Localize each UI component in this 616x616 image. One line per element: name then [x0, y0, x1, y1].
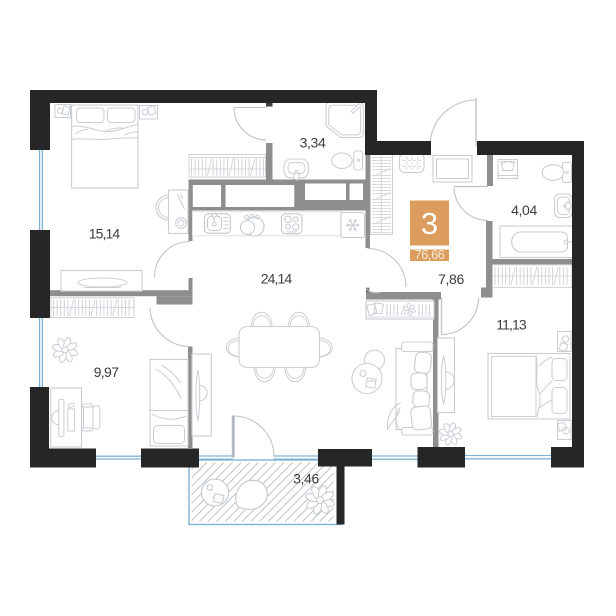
svg-text:15,14: 15,14: [89, 226, 121, 242]
svg-text:76,66: 76,66: [414, 247, 444, 262]
svg-text:3,46: 3,46: [293, 471, 319, 487]
svg-text:7,86: 7,86: [438, 271, 464, 287]
svg-text:11,13: 11,13: [496, 317, 527, 333]
svg-text:24,14: 24,14: [261, 271, 293, 287]
svg-text:3,34: 3,34: [300, 135, 326, 151]
svg-text:3: 3: [421, 206, 438, 241]
svg-text:4,04: 4,04: [511, 202, 537, 218]
svg-text:9,97: 9,97: [94, 364, 120, 380]
